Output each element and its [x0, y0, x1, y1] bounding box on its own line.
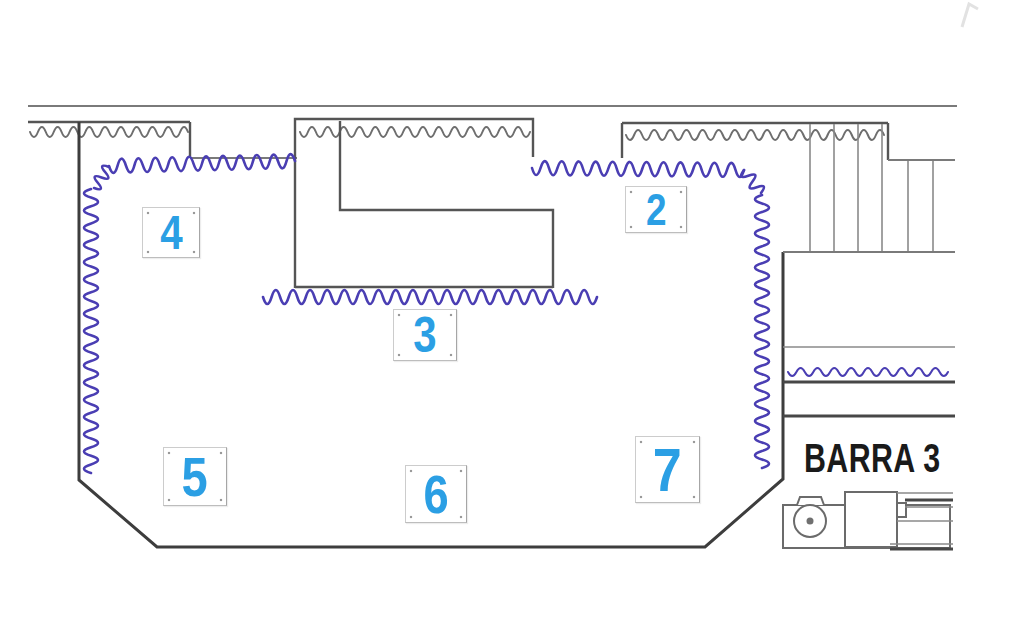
- central-block: [295, 119, 553, 288]
- zone-plate-2: 2: [625, 186, 687, 233]
- curtain-top-right: [532, 161, 744, 177]
- top-right-wall-band: [622, 123, 955, 160]
- floor-plan-drawing: [0, 0, 1024, 628]
- zone-plate-7: 7: [635, 436, 700, 503]
- top-left-wall-band: [28, 122, 297, 158]
- wall-hatching-zigzag: [626, 130, 884, 140]
- zone-plate-6: 6: [405, 465, 467, 523]
- curtain-right-vertical: [755, 195, 769, 468]
- central-block-hatching: [300, 127, 530, 137]
- wall-hatching-zigzag: [30, 127, 188, 137]
- floor-plan: 2 3 4 5 6 7 BARRA 3: [0, 0, 1024, 628]
- curtain-corner-top-left: [94, 166, 109, 190]
- curtain-top-left: [109, 154, 295, 173]
- zone-plate-3: 3: [393, 309, 457, 361]
- right-bar-strip: [783, 347, 955, 416]
- zone-number-5: 5: [182, 449, 208, 505]
- barra-3-label: BARRA 3: [804, 438, 941, 478]
- zone-number-2: 2: [646, 188, 667, 232]
- zone-plate-4: 4: [142, 207, 200, 258]
- barra-3-counter: [783, 492, 953, 549]
- equipment-detail: [897, 503, 906, 517]
- faint-corner-mark: [962, 4, 978, 27]
- zone-number-6: 6: [423, 467, 448, 521]
- zone-number-7: 7: [653, 439, 682, 501]
- counter-cabinet: [845, 492, 897, 547]
- sink-tap: [797, 497, 824, 505]
- curtain-left-vertical: [84, 189, 98, 473]
- staircase: [810, 124, 933, 251]
- zone-number-3: 3: [413, 310, 436, 360]
- central-block-inner: [340, 121, 553, 288]
- bar-strip-wave: [788, 368, 948, 376]
- zone-number-4: 4: [160, 209, 182, 257]
- curtain-zone3: [263, 290, 597, 304]
- curtain-corner-top-right: [741, 170, 764, 193]
- zone-plate-5: 5: [163, 447, 227, 506]
- central-block-outer: [295, 119, 533, 288]
- sink-drain: [807, 518, 814, 525]
